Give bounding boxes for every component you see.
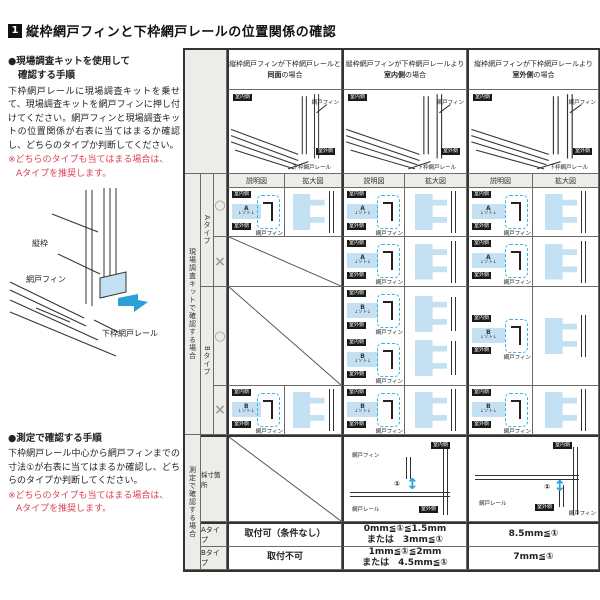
survey-kit-bar: B↓ソト↓ — [347, 402, 378, 417]
fin-profile — [511, 251, 521, 270]
kit-section-diagram: 室内側 B↓ソト↓ 室外側 網戸フィン — [469, 312, 532, 361]
outdoor-side-tag: 室外側 — [535, 504, 554, 511]
strip-kit-group-label: 現場調査キットで確認する場合 — [185, 174, 200, 434]
frame-line — [451, 297, 456, 331]
circle-symbol: ○ — [214, 174, 226, 236]
kit-section-diagram: 室内側 B↓ソト↓ 室外側 網戸フィン — [344, 386, 404, 435]
symbol-a-ok: ○ — [214, 174, 227, 237]
measure-procedure-body: 下枠網戸レール中心から網戸フィンまでの寸法①が右表に当てはまるか確認し、どちらの… — [8, 448, 180, 489]
profile-shape — [545, 244, 577, 280]
survey-kit-bar: A↓ソト↓ — [347, 204, 378, 219]
profile-shape — [545, 194, 577, 230]
push-direction-arrow — [118, 294, 148, 312]
indoor-side-tag: 室内側 — [431, 442, 450, 449]
frame-line — [329, 191, 334, 233]
cell-b-ng-indoor-explain: 室内側 B↓ソト↓ 室外側 網戸フィン — [342, 386, 405, 435]
col-header-indoor-line2: 室内側の場合 — [384, 70, 426, 81]
measure-procedure-section: ●測定で確認する手順 下枠網戸レール中心から網戸フィンまでの寸法①が右表に当ては… — [8, 432, 180, 517]
indoor-side-tag: 室内側 — [472, 315, 491, 322]
fin-profile — [383, 202, 393, 221]
result-a-indoor: 0mm≦①≦1.5mm または 3mm≦① — [342, 522, 467, 547]
subheader-enlarge: 拡大図 — [533, 174, 599, 188]
symbol-b-ng: × — [214, 386, 227, 435]
outdoor-side-tag: 室外側 — [347, 322, 366, 329]
result-a-outdoor-value: 8.5mm≦① — [509, 529, 559, 540]
kit-procedure-note: ※どちらのタイプも当てはまる場合は、 Aタイプを推奨します。 — [8, 154, 180, 181]
kit-section-diagram: 室内側 A↓ソト↓ 室外側 網戸フィン — [344, 237, 404, 286]
cell-b-ng-indoor-enlarge — [405, 386, 467, 435]
indoor-side-tag: 室内側 — [347, 339, 366, 346]
explain-label: 説明図 — [490, 176, 511, 186]
frame-line — [451, 191, 456, 233]
indoor-side-tag: 室内側 — [233, 94, 252, 101]
result-b-label: Bタイプ — [201, 547, 226, 569]
survey-kit-bar: A↓ソト↓ — [472, 253, 505, 268]
cell-measure-indoor-diagram: 室内側 網戸フィン ① ↕ 網戸レール 室外側 — [342, 435, 467, 522]
indoor-side-tag: 室内側 — [473, 94, 492, 101]
cell-a-ng-outdoor-explain: 室内側 A↓ソト↓ 室外側 網戸フィン — [467, 237, 533, 287]
result-a-indoor-line2: または 3mm≦① — [367, 535, 443, 546]
result-a-flush-value: 取付可（条件なし） — [244, 529, 325, 540]
header-diagram-indoor: 室内側 網戸フィン 室外側 下枠網戸レール — [342, 90, 467, 174]
subheader-explain: 説明図 — [227, 174, 285, 188]
outdoor-side-tag: 室外側 — [347, 272, 366, 279]
fin-profile — [511, 326, 521, 345]
circle-symbol: ○ — [214, 287, 226, 385]
na-diagonal — [229, 237, 341, 286]
strip-measure-group: 測定で確認する場合 — [185, 435, 201, 570]
fin-tag: 網戸フィン — [256, 229, 283, 237]
na-diagonal — [229, 287, 341, 385]
outdoor-side-tag: 室外側 — [316, 148, 335, 155]
kit-procedure-body: 下枠網戸レールに現場調査キットを乗せて、現場調査キットを網戸フィンに押し付けてく… — [8, 86, 180, 154]
strip-measure-group-label: 測定で確認する場合 — [185, 435, 200, 569]
frame-line — [581, 389, 586, 431]
result-b-label-cell: Bタイプ — [201, 547, 227, 570]
kit-section-diagram: 室内側 A↓ソト↓ 室外側 網戸フィン — [469, 188, 532, 237]
col-header-outdoor-line1: 縦枠網戸フィンが下枠網戸レールより — [474, 59, 593, 70]
kit-procedure-heading: ●現場調査キットを使用して — [8, 55, 180, 69]
cross-symbol: × — [214, 386, 226, 434]
outdoor-side-tag: 室外側 — [472, 347, 491, 354]
explain-label: 説明図 — [246, 176, 267, 186]
measure-procedure-note: ※どちらのタイプも当てはまる場合は、 Aタイプを推奨します。 — [8, 490, 180, 517]
frame-line — [451, 241, 456, 283]
subheader-explain: 説明図 — [342, 174, 405, 188]
result-a-label: Aタイプ — [201, 524, 226, 546]
indoor-side-tag: 室内側 — [232, 389, 251, 396]
cell-measure-outdoor-diagram: 室内側 ① ↕ 網戸レール 室外側 網戸フィン — [467, 435, 599, 522]
profile-shape — [415, 194, 447, 230]
na-diagonal — [229, 437, 341, 521]
manual-page: 1 縦枠網戸フィンと下枠網戸レールの位置関係の確認 ●現場調査キットを使用して … — [0, 0, 600, 600]
fin-tag: 網戸フィン — [569, 509, 596, 517]
survey-kit-bar: B↓ソト↓ — [347, 352, 378, 367]
cell-a-ok-outdoor-explain: 室内側 A↓ソト↓ 室外側 網戸フィン — [467, 188, 533, 237]
col-header-flush-rest: の場合 — [282, 71, 303, 79]
rail-label: 下枠網戸レール — [102, 328, 158, 339]
cell-b-ok-outdoor-enlarge — [533, 287, 599, 386]
fin-tag: 網戸フィン — [376, 278, 403, 286]
kit-section-diagram: 室内側 A↓ソト↓ 室外側 網戸フィン — [344, 188, 404, 237]
profile-shape — [415, 244, 447, 280]
indoor-side-tag: 室内側 — [553, 442, 572, 449]
fin-profile — [383, 301, 393, 320]
header-empty-cell — [185, 50, 227, 174]
outdoor-side-tag: 室外側 — [472, 272, 491, 279]
frame-label: 縦枠 — [32, 238, 48, 249]
dimension-arrow: ↕ — [406, 477, 419, 492]
cell-a-ng-indoor-explain: 室内側 A↓ソト↓ 室外側 網戸フィン — [342, 237, 405, 287]
result-b-indoor: 1mm≦①≦2mm または 4.5mm≦① — [342, 547, 467, 570]
outdoor-side-tag: 室外側 — [472, 421, 491, 428]
result-a-outdoor: 8.5mm≦① — [467, 522, 599, 547]
kit-note-line2: Aタイプを推奨します。 — [8, 169, 111, 179]
result-b-flush-value: 取付不可 — [267, 552, 303, 563]
cell-b-ng-outdoor-explain: 室内側 B↓ソト↓ 室外側 網戸フィン — [467, 386, 533, 435]
kit-section-diagram: 室内側 B↓ソト↓ 室外側 網戸フィン — [344, 287, 404, 336]
fin-tag: 網戸フィン — [437, 98, 464, 106]
result-b-indoor-line1: 1mm≦①≦2mm — [369, 547, 442, 558]
indoor-side-tag: 室内側 — [347, 191, 366, 198]
kit-soto-mark: ↓ソト↓ — [238, 410, 255, 415]
outdoor-side-tag: 室外側 — [232, 421, 251, 428]
kit-soto-mark: ↓ソト↓ — [354, 261, 371, 266]
fin-tag: 網戸フィン — [504, 353, 531, 361]
col-header-indoor: 縦枠網戸フィンが下枠網戸レールより 室内側の場合 — [342, 50, 467, 90]
fin-tag: 網戸フィン — [504, 427, 531, 435]
outdoor-side-tag: 室外側 — [441, 148, 460, 155]
fin-tag: 網戸フィン — [256, 427, 283, 435]
profile-shape — [545, 392, 577, 428]
profile-shape — [415, 296, 447, 332]
cell-measure-flush-na — [227, 435, 342, 522]
profile-shape — [293, 194, 325, 230]
fin-profile — [383, 350, 393, 369]
cell-b-ok-indoor-enlarge — [405, 287, 467, 386]
cell-b-ok-outdoor-explain: 室内側 B↓ソト↓ 室外側 網戸フィン — [467, 287, 533, 386]
kit-soto-mark: ↓ソト↓ — [238, 212, 255, 217]
fin-tag: 網戸フィン — [312, 98, 339, 106]
fin-tag: 網戸フィン — [504, 278, 531, 286]
outdoor-side-tag: 室外側 — [347, 223, 366, 230]
kit-soto-mark: ↓ソト↓ — [480, 410, 497, 415]
strip-type-a-label: Aタイプ — [201, 174, 213, 286]
header-diagram-flush: 室内側 網戸フィン 室外側 下枠網戸レール — [227, 90, 342, 174]
comparison-table: 縦枠網戸フィンが下枠網戸レールと 同面の場合 縦枠網戸フィンが下枠網戸レールより… — [183, 48, 600, 572]
explain-label: 説明図 — [364, 176, 385, 186]
outdoor-side-tag: 室外側 — [573, 148, 592, 155]
cell-a-ok-flush-explain: 室内側 A↓ソト↓ 室外側 網戸フィン — [227, 188, 285, 237]
frame-line — [451, 341, 456, 375]
kit-note-line1: ※どちらのタイプも当てはまる場合は、 — [8, 155, 168, 165]
kit-section-diagram: 室内側 B↓ソト↓ 室外側 網戸フィン — [469, 386, 532, 435]
col-header-outdoor-line2: 室外側の場合 — [513, 70, 555, 81]
kit-soto-mark: ↓ソト↓ — [480, 212, 497, 217]
cell-b-ok-flush-na — [227, 287, 342, 386]
indoor-side-tag: 室内側 — [347, 389, 366, 396]
screen-rail-tag: 網戸レール — [479, 499, 507, 507]
frame-line — [451, 389, 456, 431]
cross-symbol: × — [214, 237, 226, 286]
kit-soto-mark: ↓ソト↓ — [480, 336, 497, 341]
enlarge-label: 拡大図 — [425, 176, 446, 186]
page-title-text: 縦枠網戸フィンと下枠網戸レールの位置関係の確認 — [26, 21, 336, 40]
fin-profile — [511, 202, 521, 221]
measure-note-line2: Aタイプを推奨します。 — [8, 504, 111, 514]
subheader-enlarge: 拡大図 — [405, 174, 467, 188]
survey-kit-bar: B↓ソト↓ — [472, 402, 505, 417]
fin-tag: 網戸フィン — [376, 427, 403, 435]
cell-a-ok-flush-enlarge — [285, 188, 342, 237]
profile-shape — [415, 392, 447, 428]
indoor-side-tag: 室内側 — [472, 389, 491, 396]
outdoor-side-tag: 室外側 — [472, 223, 491, 230]
result-a-indoor-line1: 0mm≦①≦1.5mm — [364, 524, 446, 535]
kit-section-diagram: 室内側 B↓ソト↓ 室外側 網戸フィン — [344, 336, 404, 385]
col-header-indoor-bold: 室内側 — [384, 71, 405, 79]
result-b-outdoor: 7mm≦① — [467, 547, 599, 570]
strip-type-b-label: Bタイプ — [201, 287, 213, 434]
frame-line — [581, 315, 586, 357]
profile-shape — [415, 340, 447, 376]
measure-row-label-cell: 採寸箇所 — [201, 435, 227, 522]
strip-type-b: Bタイプ — [201, 287, 214, 435]
outdoor-side-tag: 室外側 — [419, 506, 438, 513]
survey-kit-bar: B↓ソト↓ — [472, 328, 505, 343]
measure-note-line1: ※どちらのタイプも当てはまる場合は、 — [8, 491, 168, 501]
col-header-flush-line1: 縦枠網戸フィンが下枠網戸レールと — [229, 59, 341, 70]
indoor-side-tag: 室内側 — [472, 240, 491, 247]
fin-tag: 網戸フィン — [504, 229, 531, 237]
indoor-side-tag: 室内側 — [347, 240, 366, 247]
cell-a-ng-outdoor-enlarge — [533, 237, 599, 287]
kit-soto-mark: ↓ソト↓ — [354, 212, 371, 217]
indoor-side-tag: 室内側 — [348, 94, 367, 101]
result-b-flush: 取付不可 — [227, 547, 342, 570]
rail-tag: 下枠網戸レール — [292, 163, 331, 171]
fin-profile — [511, 400, 521, 419]
cell-b-ng-outdoor-enlarge — [533, 386, 599, 435]
kit-section-diagram: 室内側 A↓ソト↓ 室外側 網戸フィン — [469, 237, 532, 286]
cell-a-ok-outdoor-enlarge — [533, 188, 599, 237]
cell-a-ok-indoor-explain: 室内側 A↓ソト↓ 室外側 網戸フィン — [342, 188, 405, 237]
measure-procedure-heading: ●測定で確認する手順 — [8, 432, 180, 446]
fin-profile — [263, 202, 273, 221]
cell-b-ok-indoor-explain: 室内側 B↓ソト↓ 室外側 網戸フィン 室内側 B↓ソト↓ 室外側 網戸フィン — [342, 287, 405, 386]
frame-corner-perspective-drawing: 縦枠 網戸フィン 下枠網戸レール — [6, 186, 178, 362]
fin-tag: 網戸フィン — [569, 98, 596, 106]
kit-procedure-section: ●現場調査キットを使用して 確認する手順 下枠網戸レールに現場調査キットを乗せて… — [8, 55, 180, 181]
symbol-b-ok: ○ — [214, 287, 227, 386]
col-header-outdoor: 縦枠網戸フィンが下枠網戸レールより 室外側の場合 — [467, 50, 599, 90]
rail-line — [350, 492, 450, 497]
survey-kit-bar: A↓ソト↓ — [347, 253, 378, 268]
col-header-flush: 縦枠網戸フィンが下枠網戸レールと 同面の場合 — [227, 50, 342, 90]
result-b-indoor-line2: または 4.5mm≦① — [362, 558, 448, 569]
section-number-badge: 1 — [8, 24, 22, 38]
kit-soto-mark: ↓ソト↓ — [480, 261, 497, 266]
outdoor-side-tag: 室外側 — [347, 421, 366, 428]
fin-tag: 網戸フィン — [376, 377, 403, 385]
indoor-side-tag: 室内側 — [232, 191, 251, 198]
enlarge-label: 拡大図 — [555, 176, 576, 186]
fin-label: 網戸フィン — [26, 274, 66, 285]
fin-profile — [263, 400, 273, 419]
rail-tag: 下枠網戸レール — [549, 163, 588, 171]
indoor-side-tag: 室内側 — [347, 290, 366, 297]
outdoor-side-tag: 室外側 — [347, 371, 366, 378]
survey-kit-bar: B↓ソト↓ — [347, 303, 378, 318]
frame-line — [443, 447, 448, 515]
kit-soto-mark: ↓ソト↓ — [354, 360, 371, 365]
kit-soto-mark: ↓ソト↓ — [354, 410, 371, 415]
kit-procedure-heading-line2: 確認する手順 — [8, 69, 180, 83]
strip-type-a: Aタイプ — [201, 174, 214, 287]
profile-shape — [545, 318, 577, 354]
fin-profile — [383, 251, 393, 270]
cell-b-ng-flush-enlarge — [285, 386, 342, 435]
fin-tag: 網戸フィン — [352, 451, 379, 459]
fin-tag: 網戸フィン — [376, 229, 403, 237]
frame-line — [573, 447, 578, 515]
result-a-flush: 取付可（条件なし） — [227, 522, 342, 547]
cell-b-ng-flush-explain: 室内側 B↓ソト↓ 室外側 網戸フィン — [227, 386, 285, 435]
symbol-a-ng: × — [214, 237, 227, 287]
col-header-outdoor-rest: の場合 — [534, 71, 555, 79]
cell-a-ng-flush-na — [227, 237, 342, 287]
fin-profile — [383, 400, 393, 419]
col-header-outdoor-bold: 室外側 — [513, 71, 534, 79]
fin-tag: 網戸フィン — [376, 328, 403, 336]
outdoor-side-tag: 室外側 — [232, 223, 251, 230]
result-a-label-cell: Aタイプ — [201, 522, 227, 547]
dimension-arrow: ↕ — [553, 479, 566, 494]
result-b-outdoor-value: 7mm≦① — [513, 552, 553, 563]
kit-soto-mark: ↓ソト↓ — [354, 311, 371, 316]
kit-section-diagram: 室内側 B↓ソト↓ 室外側 網戸フィン — [229, 386, 284, 435]
rail-tag: 下枠網戸レール — [417, 163, 456, 171]
cell-a-ng-indoor-enlarge — [405, 237, 467, 287]
dimension-1: ① — [544, 483, 550, 491]
subheader-explain: 説明図 — [467, 174, 533, 188]
frame-line — [329, 389, 334, 431]
header-diagram-outdoor: 室内側 網戸フィン 室外側 下枠網戸レール — [467, 90, 599, 174]
page-title: 1 縦枠網戸フィンと下枠網戸レールの位置関係の確認 — [8, 21, 336, 40]
subheader-enlarge: 拡大図 — [285, 174, 342, 188]
cell-a-ok-indoor-enlarge — [405, 188, 467, 237]
col-header-indoor-line1: 縦枠網戸フィンが下枠網戸レールより — [346, 59, 465, 70]
survey-kit-bar: A↓ソト↓ — [472, 204, 505, 219]
frame-line — [581, 191, 586, 233]
strip-kit-group: 現場調査キットで確認する場合 — [185, 174, 201, 435]
col-header-flush-line2: 同面の場合 — [268, 70, 303, 81]
screen-rail-tag: 網戸レール — [352, 505, 380, 513]
dimension-1: ① — [394, 480, 400, 488]
col-header-flush-bold: 同面 — [268, 71, 282, 79]
indoor-side-tag: 室内側 — [472, 191, 491, 198]
enlarge-label: 拡大図 — [303, 176, 324, 186]
measure-row-label: 採寸箇所 — [201, 437, 226, 521]
kit-section-diagram: 室内側 A↓ソト↓ 室外側 網戸フィン — [229, 188, 284, 237]
frame-line — [581, 241, 586, 283]
col-header-indoor-rest: の場合 — [405, 71, 426, 79]
profile-shape — [293, 392, 325, 428]
